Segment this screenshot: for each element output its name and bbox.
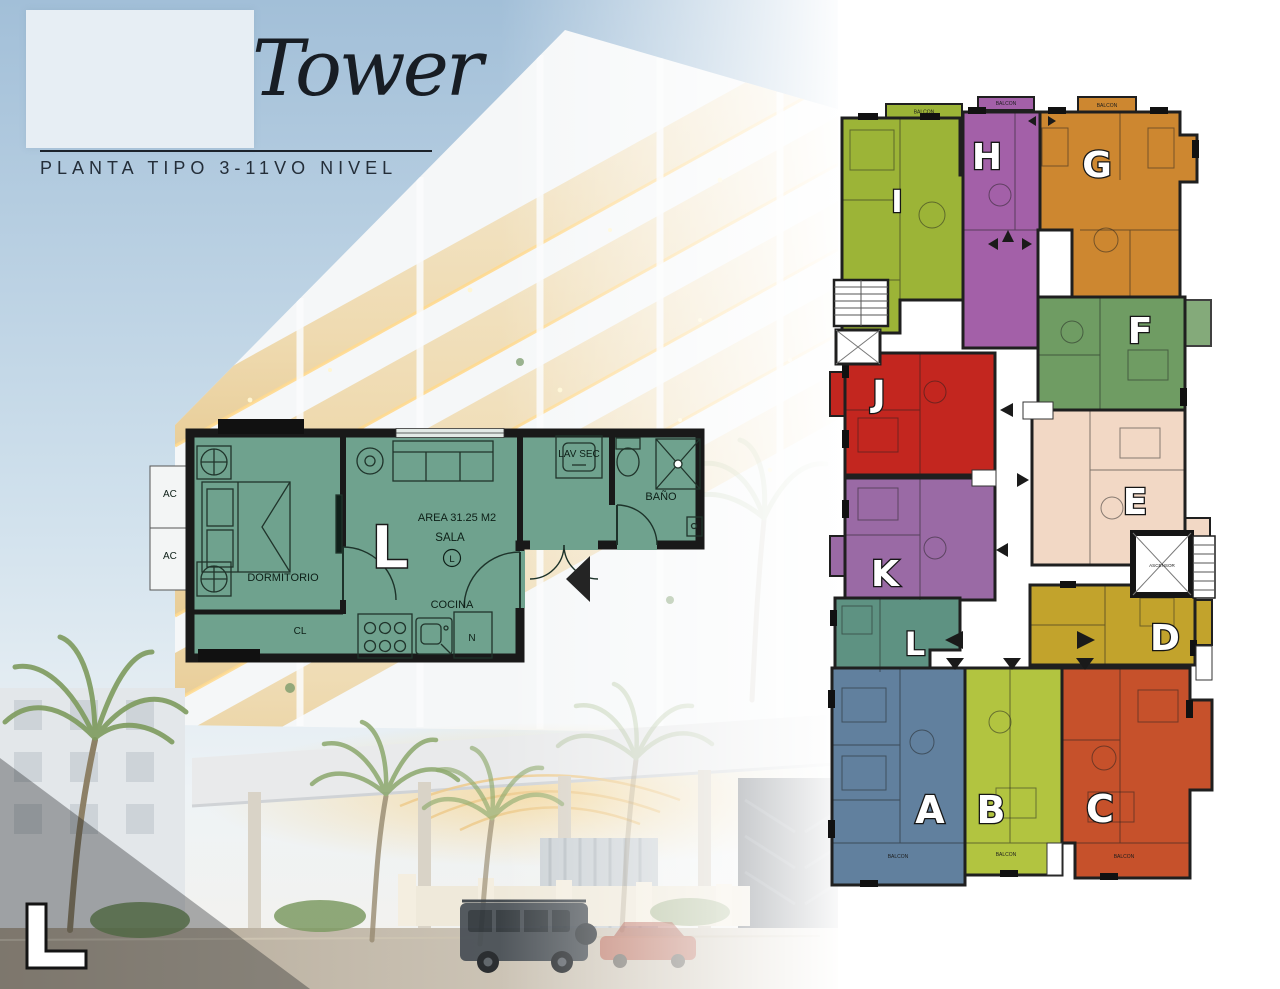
stairs-right <box>1193 536 1215 598</box>
corner-letter-shape <box>27 904 86 968</box>
project-title: Tower <box>252 14 482 134</box>
elevator-label: ASCENSOR <box>1149 563 1175 568</box>
utility-box <box>1047 843 1062 875</box>
unit-g <box>1040 112 1197 297</box>
unit-f <box>1038 297 1185 410</box>
window <box>396 429 504 438</box>
unit-shapes <box>832 112 1212 885</box>
corner-unit-letter: L <box>22 900 94 974</box>
unit-letter-k: K <box>871 554 900 595</box>
unit-letter-f: F <box>1128 311 1153 352</box>
floor-plate-plan: ASCENSOR BALCON BALCON BALCON BALCON BAL… <box>820 85 1220 910</box>
room-label-bano: BAÑO <box>645 490 677 503</box>
room-label-dormitorio: DORMITORIO <box>247 572 319 584</box>
svg-text:BALCON: BALCON <box>914 110 935 116</box>
sill-tab <box>198 649 260 662</box>
area-label: AREA 31.25 M2 <box>418 512 496 524</box>
svg-text:BALCON: BALCON <box>1114 854 1135 860</box>
unit-letter-d: D <box>1150 618 1180 659</box>
room-label-closet: CL <box>294 626 307 637</box>
unit-letter-b: B <box>977 788 1006 832</box>
utility-box <box>972 470 996 486</box>
utility-box <box>1023 402 1053 419</box>
sill-tab <box>218 419 304 434</box>
unit-letter-i: I <box>891 185 902 220</box>
elevator-icon: ASCENSOR <box>1133 533 1191 595</box>
fridge-label: N <box>468 633 475 644</box>
svg-text:BALCON: BALCON <box>888 854 909 860</box>
unit-letter-e: E <box>1123 482 1148 523</box>
plan-subtitle: PLANTA TIPO 3-11VO NIVEL <box>40 158 397 179</box>
unit-l <box>835 598 960 672</box>
svg-text:BALCON: BALCON <box>996 852 1017 858</box>
room-label-lavsec: LAV SEC <box>558 449 600 460</box>
unit-l-floorplan: AC AC <box>140 402 720 687</box>
ac-label: AC <box>163 489 177 500</box>
poster-canvas: Tower PLANTA TIPO 3-11VO NIVEL AC AC <box>0 0 1280 989</box>
unit-circle-letter: L <box>449 554 454 565</box>
room-label-sala: SALA <box>435 532 465 544</box>
unit-letter-a: A <box>915 788 945 832</box>
tv-console-icon <box>336 495 342 553</box>
unit-letter-h: H <box>972 137 1002 178</box>
unit-letter-j: J <box>869 374 885 415</box>
logo-placeholder <box>26 10 254 148</box>
unit-letter-l: L <box>905 625 925 663</box>
elevator-icon <box>836 330 880 364</box>
unit-big-letter: L <box>371 513 409 583</box>
ac-label: AC <box>163 551 177 562</box>
room-label-cocina: COCINA <box>431 599 474 611</box>
unit-c <box>1062 668 1212 878</box>
unit-a <box>832 668 965 885</box>
unit-letter-g: G <box>1082 145 1112 186</box>
utility-box <box>1196 646 1212 680</box>
svg-text:BALCON: BALCON <box>996 101 1017 107</box>
unit-letter-c: C <box>1086 787 1114 831</box>
title-divider <box>40 150 432 152</box>
svg-text:BALCON: BALCON <box>1097 103 1118 109</box>
bush <box>274 900 366 932</box>
stairs-top <box>834 280 888 326</box>
